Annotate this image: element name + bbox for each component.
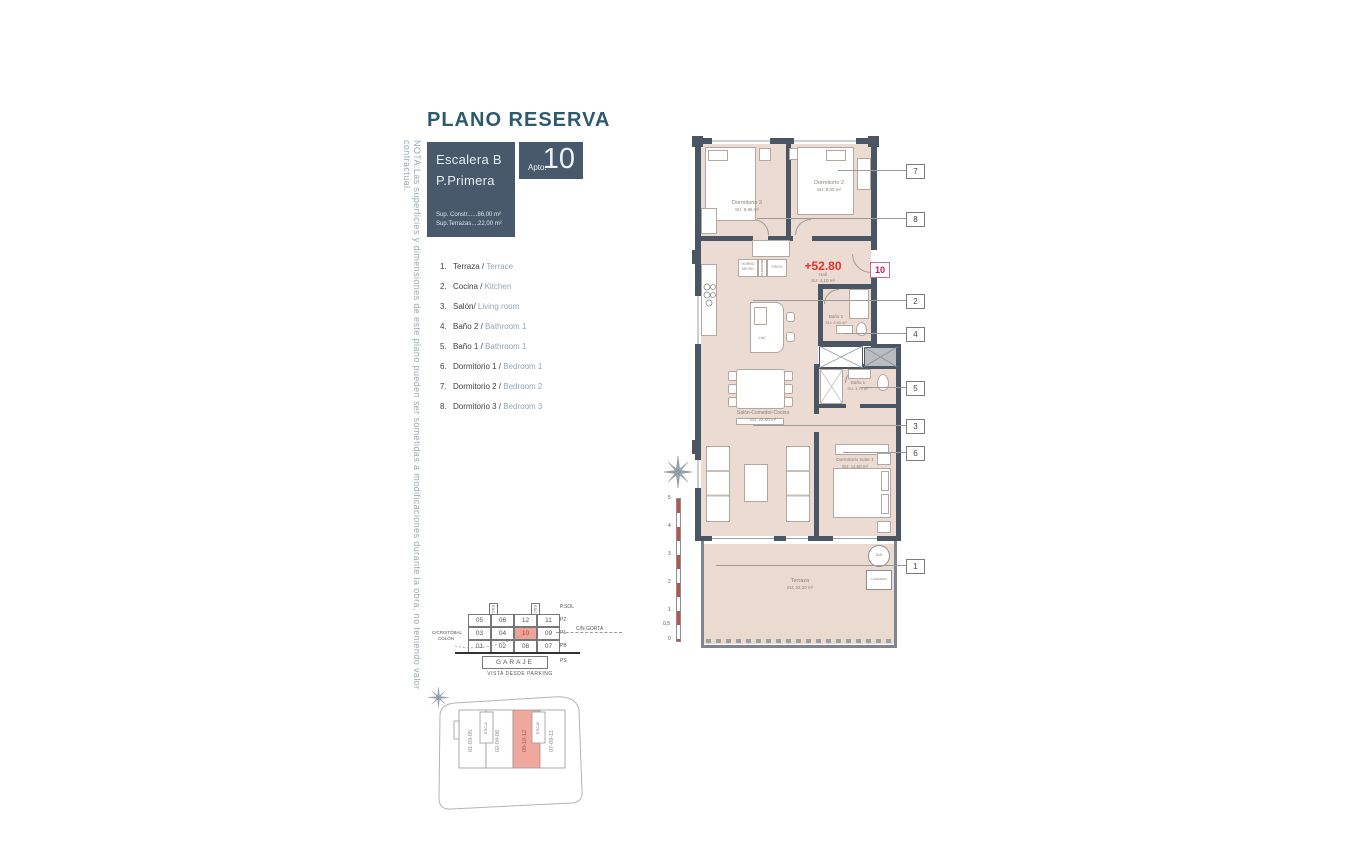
window [712, 138, 770, 144]
terrace-wall [701, 541, 704, 648]
callout-4: 4 [906, 327, 925, 342]
scale-tick: 2 [668, 579, 671, 585]
callout-5: 5 [906, 381, 925, 396]
garage-cell: 11 [537, 614, 560, 627]
stool [786, 332, 795, 342]
level-label: P.SOL [560, 604, 574, 610]
pillow [826, 150, 846, 161]
chair [728, 384, 737, 394]
legend-item: 2.Cocina / Kitchen [440, 282, 542, 302]
site-label-4: 07-09-11 [549, 730, 555, 752]
chair [728, 371, 737, 381]
legend-item: 1.Terraza / Terrace [440, 262, 542, 282]
elevator-box [819, 346, 863, 368]
pillow [708, 150, 728, 161]
stair-floor-box: Escalera B P.Primera Sup. Constr......86… [427, 142, 515, 237]
room-label-dorm3: Dormitorio 3SU: 9,96 m² [712, 200, 782, 213]
garage-cell: 12 [514, 614, 537, 627]
island-label: LAV [752, 336, 772, 340]
site-label-1: 01-03-05 [468, 730, 474, 752]
page-title: PLANO RESERVA [427, 109, 610, 132]
scale-tick: 1 [668, 607, 671, 613]
scale-tick: 0,5 [663, 621, 670, 627]
room-label-bano1: Baño 1SU: 3,75 m² [840, 380, 876, 391]
garage-caption: VISTA DESDE PARKING [470, 671, 570, 677]
callout-2: 2 [906, 294, 925, 309]
window [794, 138, 856, 144]
room-label-suite: Dormitorio suite 1SU: 11,60 m² [822, 458, 888, 470]
callout-7: 7 [906, 164, 925, 179]
vanity [848, 369, 871, 379]
scale-bar-stripe [676, 498, 681, 642]
legend-item: 4.Baño 2 / Bathroom 1 [440, 322, 542, 342]
nightstand [759, 148, 771, 161]
nightstand [877, 521, 891, 533]
chair [784, 371, 793, 381]
legend-item: 3.Salón/ Living room [440, 302, 542, 322]
oven-label: HORNO MICRO [738, 262, 758, 271]
dining-table [736, 369, 785, 409]
room-label-terraza: TerrazaSU: 22,20 m² [765, 578, 835, 591]
leader-line [716, 565, 906, 566]
pillar [868, 136, 879, 147]
island-sink [754, 307, 767, 325]
garaje-bar: GARAJE [482, 656, 548, 669]
terrace-floor [704, 544, 894, 644]
disclaimer-note: NOTA:Las superficies y dimensiones de es… [402, 140, 422, 740]
garage-cell: 09 [537, 627, 560, 640]
leader-line [753, 300, 906, 301]
built-surface: Sup. Constr......86,00 m² [436, 211, 502, 220]
window [695, 460, 701, 488]
chair [784, 397, 793, 407]
room-label-salon: Salón-Comedor-CocinaSU: 22,60 m² [722, 410, 804, 422]
room-label-dorm2: Dormitorio 2SU: 8,00 m² [794, 180, 864, 193]
cooktop [702, 282, 716, 308]
legend-item: 6.Dormitorio 1 / Bedroom 1 [440, 362, 542, 382]
legend-item: 7.Dormitorio 2 / Bedroom 2 [440, 382, 542, 402]
level-label: P1 [560, 630, 566, 636]
shaft-box [864, 347, 897, 367]
leader-line [843, 452, 906, 453]
room-legend: 1.Terraza / Terrace 2.Cocina / Kitchen 3… [440, 262, 542, 422]
coffee-table [744, 464, 768, 502]
level-label: PB [560, 643, 567, 649]
sliding-door [786, 536, 808, 541]
sofa [706, 446, 730, 522]
wall [814, 432, 819, 539]
street-dashed-line [556, 632, 622, 633]
wall [816, 404, 846, 408]
nightstand [789, 148, 798, 160]
site-section-notch [454, 721, 459, 739]
pillar [692, 250, 701, 264]
legend-item: 8.Dormitorio 3 / Bedroom 3 [440, 402, 542, 422]
pantry-label: DESPENSA [760, 260, 764, 276]
site-esc-a-label: ESC-A [484, 722, 488, 734]
toilet [877, 374, 889, 391]
chair [784, 384, 793, 394]
chair [728, 397, 737, 407]
leader-line [838, 170, 906, 171]
compass-icon [662, 455, 694, 491]
unit-badge: 10 [870, 262, 890, 278]
leader-line [860, 387, 906, 388]
pillow [881, 471, 889, 491]
level-label: +52.80 [795, 259, 851, 273]
sofa [786, 446, 810, 522]
site-esc-b-label: ESC-B [536, 722, 540, 734]
garage-cell: 06 [491, 614, 514, 627]
sliding-door [712, 536, 774, 541]
floor-label: P.Primera [436, 170, 515, 191]
leader-line [845, 333, 906, 334]
callout-8: 8 [906, 212, 925, 227]
site-label-2: 02-04-06 [495, 730, 501, 752]
scale-tick: 0 [668, 636, 671, 642]
room-label-bano2: Baño 2SU: 2,60 m² [818, 314, 854, 325]
site-plan: 01-03-05 02-04-06 08-10-12 07-09-11 ESC-… [425, 683, 600, 823]
wall [860, 404, 901, 408]
level-label: PS [560, 658, 567, 664]
leader-line [753, 425, 906, 426]
callout-6: 6 [906, 446, 925, 461]
stool [786, 312, 795, 322]
garage-cell: 05 [468, 614, 491, 627]
pillow [881, 494, 889, 514]
apartment-box: Apto. 10 [519, 142, 583, 179]
leader-line [757, 218, 906, 219]
ground-line [455, 652, 580, 654]
level-label: P2 [560, 617, 566, 623]
scale-tick: 3 [668, 551, 671, 557]
window [833, 536, 877, 541]
wall [701, 236, 753, 241]
pillar [692, 136, 703, 147]
callout-3: 3 [906, 419, 925, 434]
terrace-railing [706, 639, 892, 643]
plan-sheet: NOTA:Las superficies y dimensiones de es… [0, 0, 1360, 850]
legend-item: 5.Baño 1 / Bathroom 1 [440, 342, 542, 362]
stair-label: Escalera B [436, 149, 515, 170]
fridge-label: FRIGO [767, 265, 787, 269]
site-label-3: 08-10-12 [522, 730, 528, 752]
scale-tick: 5 [668, 495, 671, 501]
wall [812, 236, 871, 241]
scale-tick: 4 [668, 523, 671, 529]
wall [896, 344, 901, 541]
terrace-wall [701, 645, 897, 648]
garage-pointer [450, 630, 530, 652]
terrace-wall [894, 541, 897, 648]
pillar [692, 440, 701, 454]
apto-number: 10 [543, 143, 575, 176]
terrace-surface: Sup.Terrazas....22,00 m² [436, 220, 502, 229]
ac-label: A/A [868, 553, 890, 557]
hall-wardrobe [752, 240, 790, 257]
callout-1: 1 [906, 559, 925, 574]
laundry-label: LAVADERO [866, 577, 892, 581]
room-label-hall: HallSU: 4,10 m² [795, 272, 851, 284]
